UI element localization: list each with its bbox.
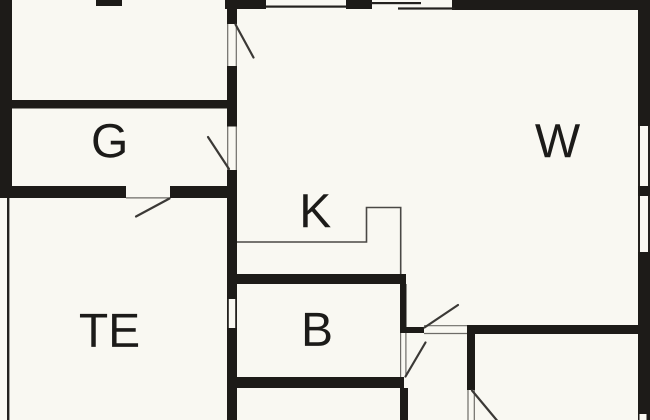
svg-text:TE: TE	[79, 305, 140, 358]
svg-text:W: W	[535, 115, 581, 168]
svg-text:B: B	[301, 304, 333, 357]
svg-text:K: K	[299, 185, 331, 238]
svg-text:G: G	[91, 115, 128, 168]
